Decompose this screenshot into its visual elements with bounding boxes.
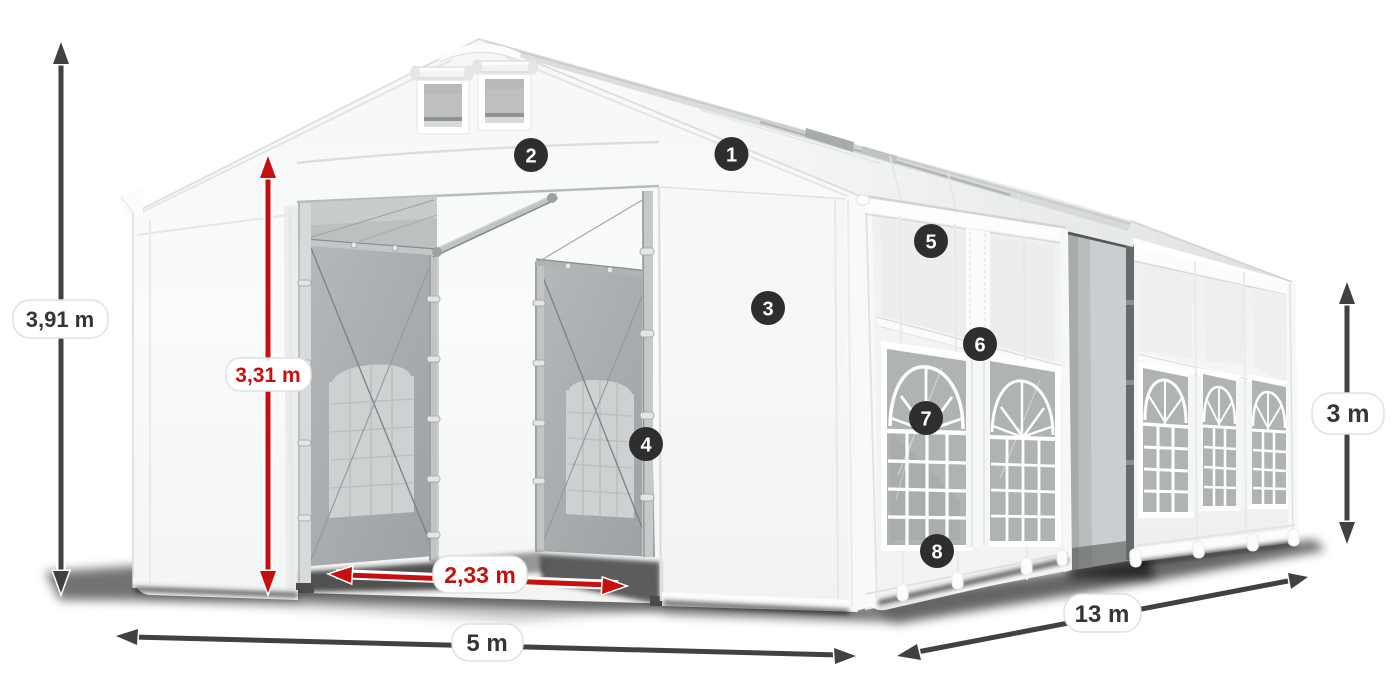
svg-text:5 m: 5 m bbox=[466, 630, 507, 657]
svg-text:2: 2 bbox=[525, 146, 536, 168]
svg-text:5: 5 bbox=[925, 232, 936, 254]
svg-text:4: 4 bbox=[640, 435, 652, 457]
svg-text:3,31 m: 3,31 m bbox=[235, 364, 300, 387]
svg-text:3: 3 bbox=[762, 299, 773, 321]
svg-text:1: 1 bbox=[726, 145, 737, 167]
svg-text:7: 7 bbox=[920, 409, 931, 431]
svg-text:8: 8 bbox=[931, 542, 942, 564]
svg-text:3 m: 3 m bbox=[1326, 400, 1369, 428]
svg-text:3,91 m: 3,91 m bbox=[26, 307, 95, 332]
svg-text:13 m: 13 m bbox=[1075, 601, 1130, 628]
svg-text:6: 6 bbox=[974, 335, 985, 357]
svg-text:2,33 m: 2,33 m bbox=[444, 562, 516, 588]
